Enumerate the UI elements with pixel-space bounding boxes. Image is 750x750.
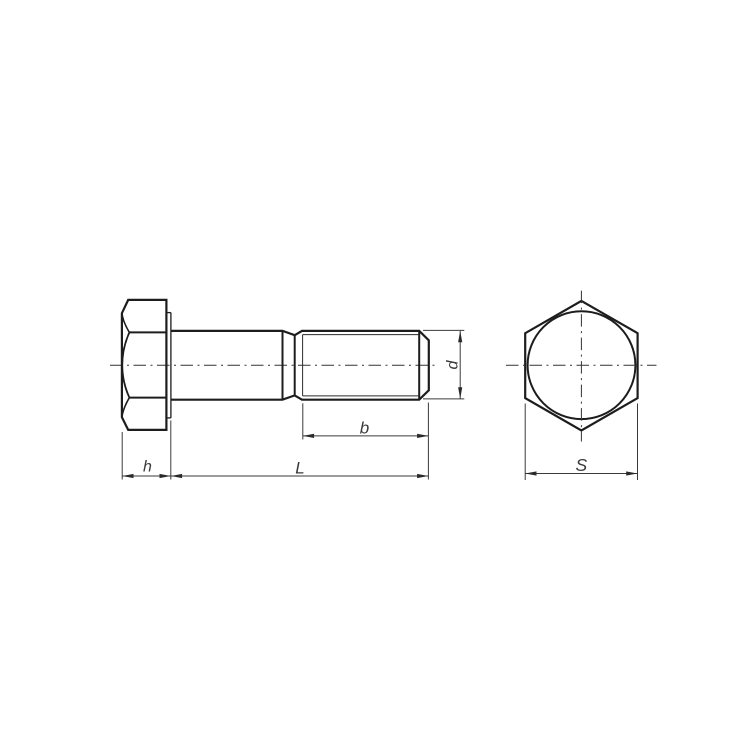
- svg-text:L: L: [295, 458, 304, 477]
- svg-text:d: d: [445, 359, 462, 369]
- svg-text:h: h: [143, 459, 152, 476]
- svg-text:b: b: [360, 418, 369, 437]
- svg-text:S: S: [576, 455, 588, 475]
